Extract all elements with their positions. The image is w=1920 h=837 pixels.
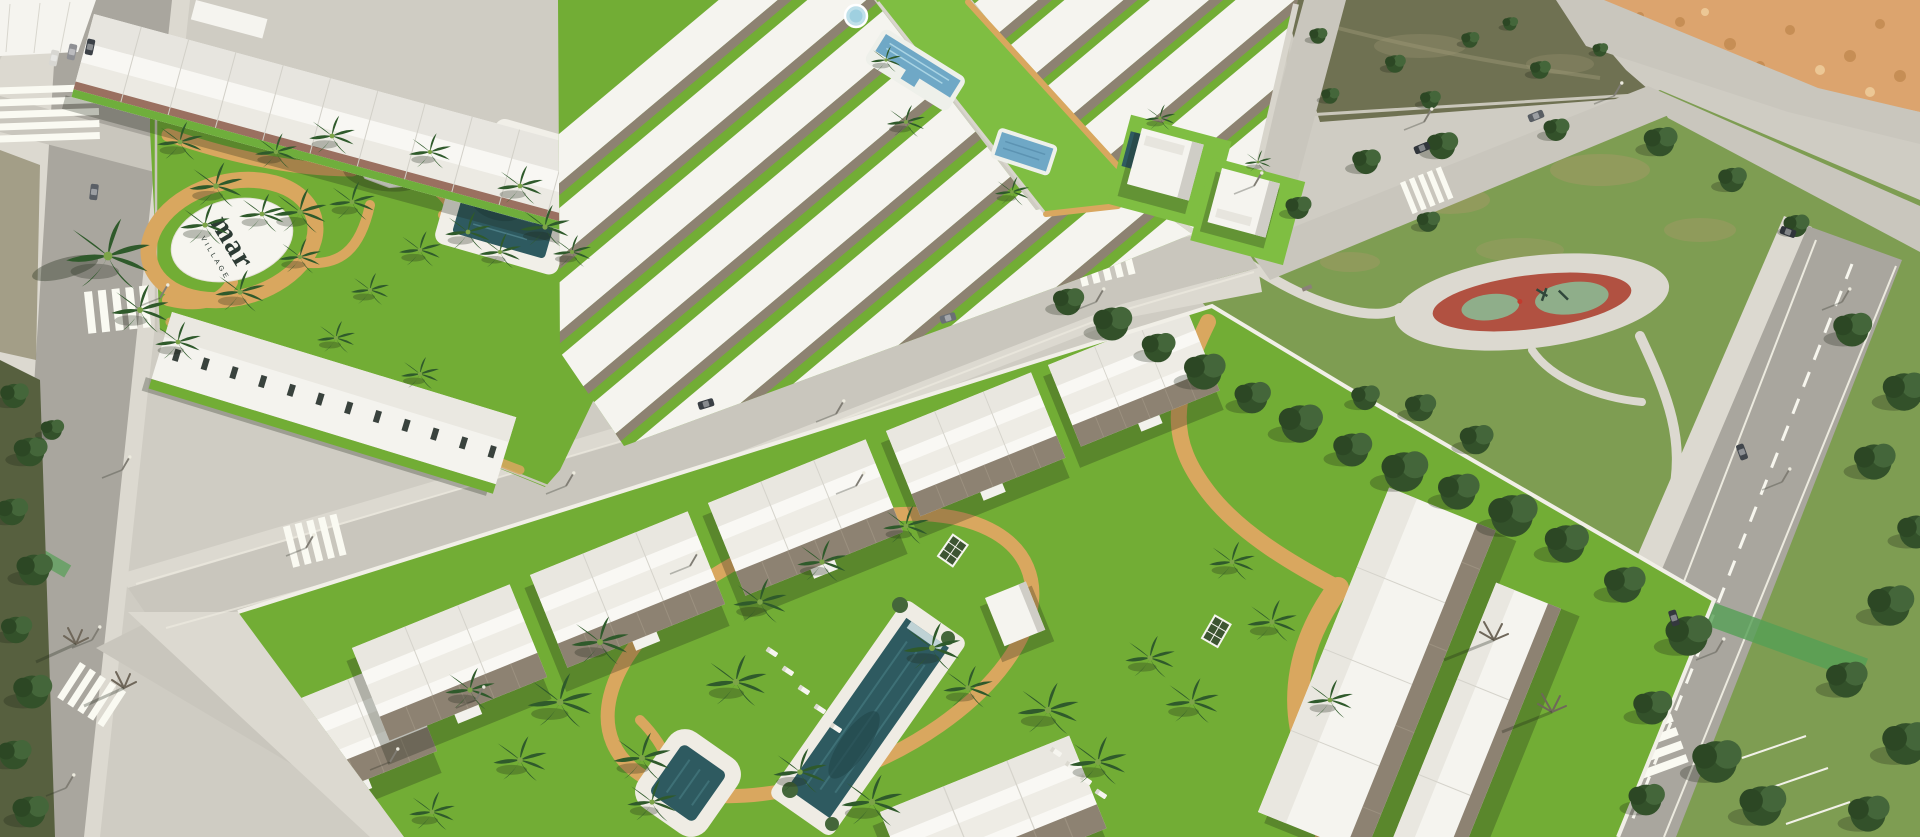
aerial-render-stage: mar VILLAGE <box>0 0 1920 837</box>
aerial-render: mar VILLAGE <box>0 0 1920 837</box>
round-pool <box>845 5 867 27</box>
